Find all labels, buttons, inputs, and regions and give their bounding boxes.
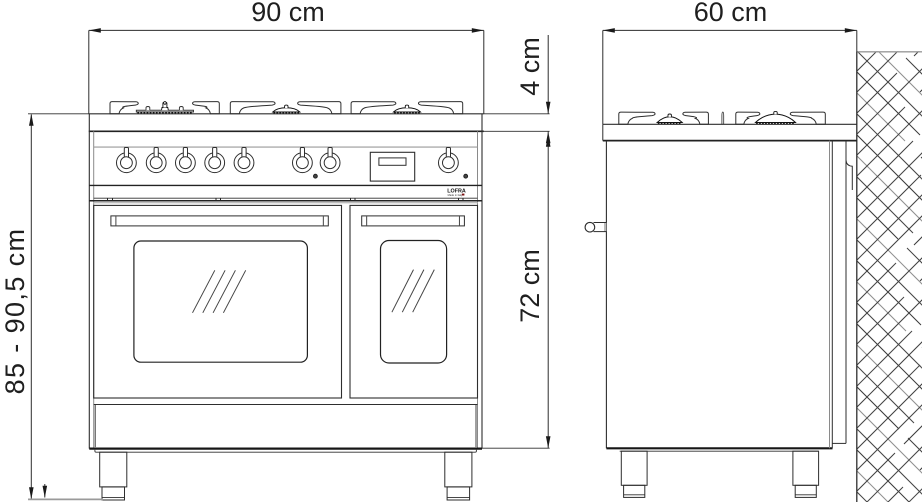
svg-text:Made in Italy: Made in Italy [448, 193, 463, 197]
svg-text:90 cm: 90 cm [251, 0, 325, 27]
svg-text:60 cm: 60 cm [694, 0, 768, 27]
svg-text:85 - 90,5 cm: 85 - 90,5 cm [0, 228, 30, 395]
svg-text:72 cm: 72 cm [515, 249, 545, 323]
svg-text:4 cm: 4 cm [515, 37, 545, 96]
